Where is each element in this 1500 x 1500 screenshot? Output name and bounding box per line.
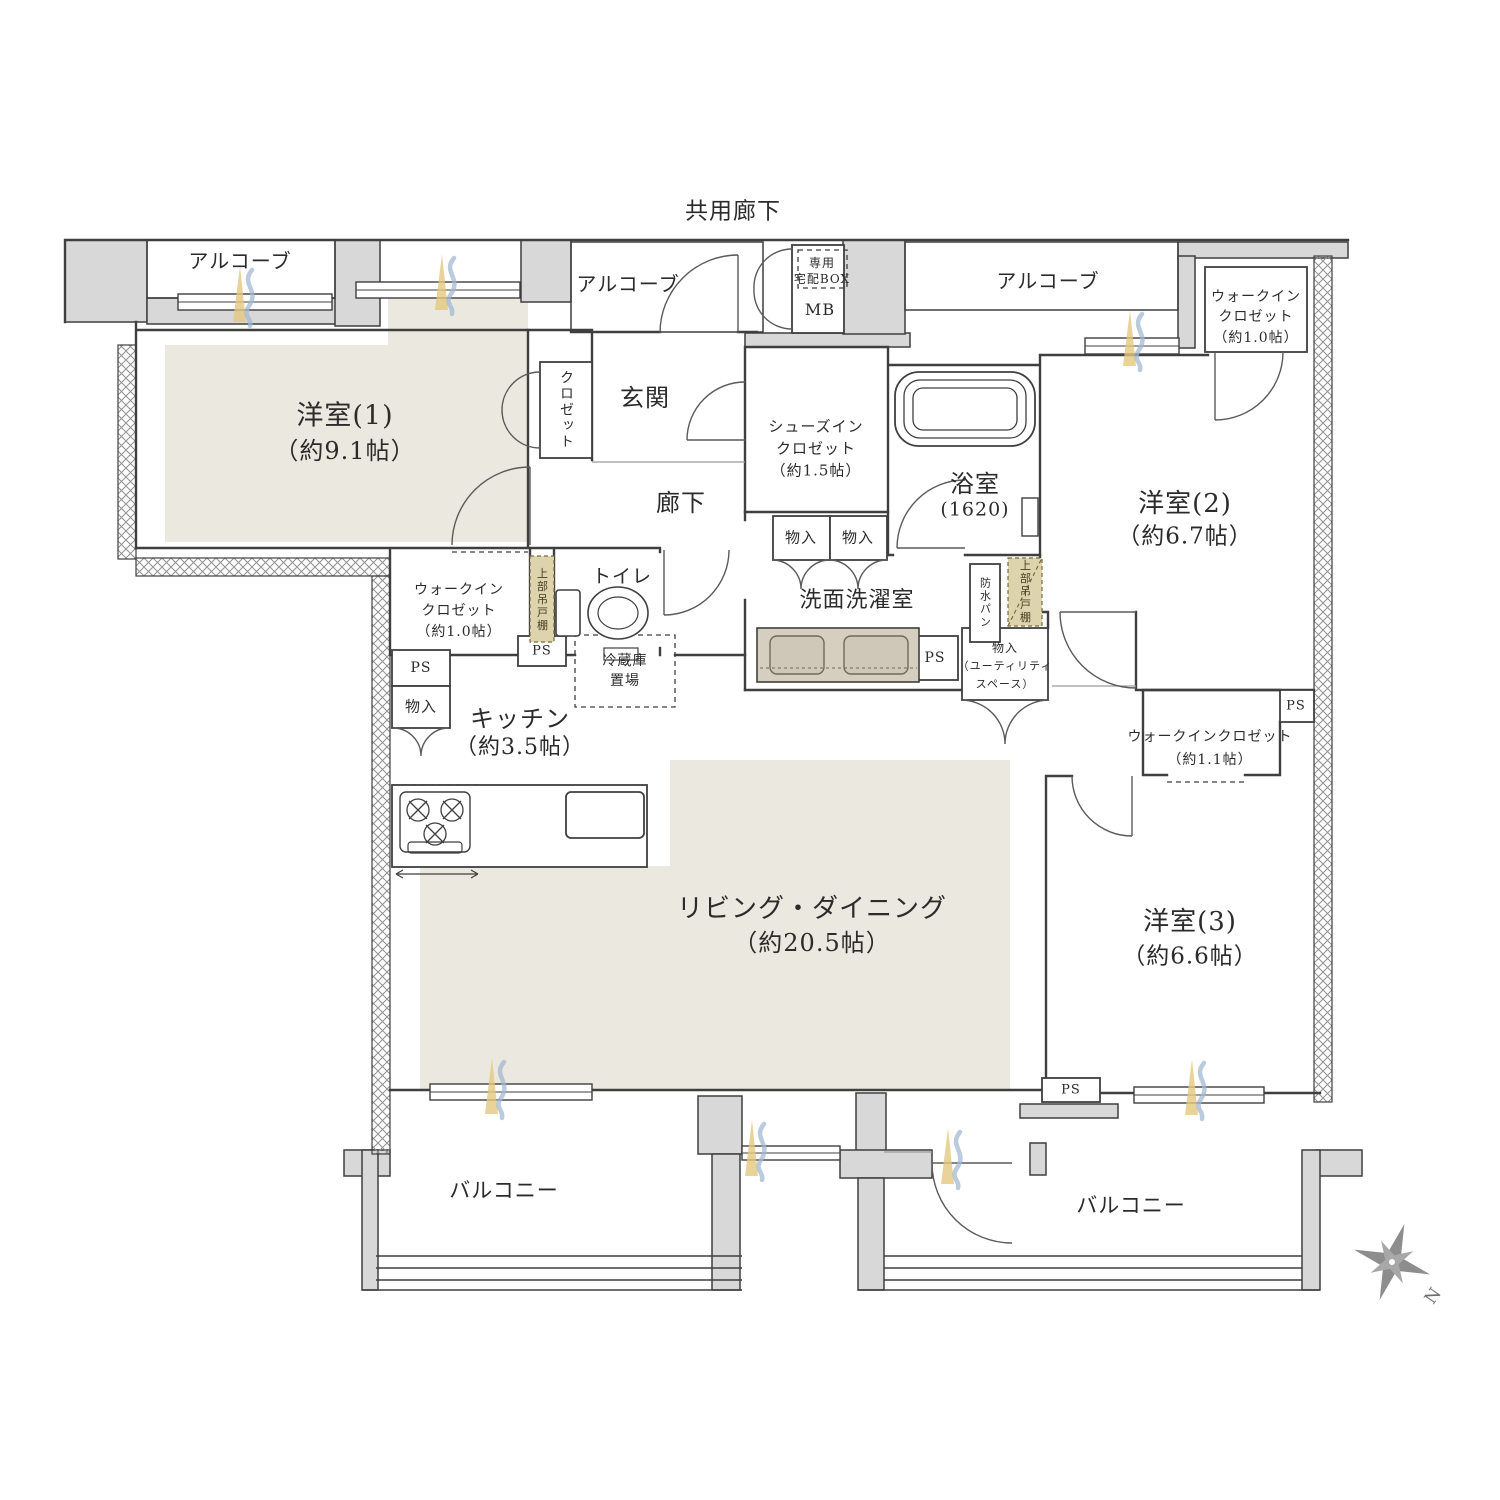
storage-utility-label-1: 物入	[992, 642, 1018, 654]
ps-label-2: PS	[532, 645, 552, 658]
waterproof-pan-label: 防水パン	[980, 577, 991, 629]
laundry-label: 洗面洗濯室	[799, 590, 914, 612]
balcony-right-label: バルコニー	[1076, 1196, 1186, 1217]
fridge-space-label-2: 置場	[610, 674, 640, 688]
bathroom-name: 浴室	[950, 472, 1000, 496]
toilet-label: トイレ	[592, 568, 652, 587]
wic-right-label-1: ウォークインクロゼット	[1128, 730, 1293, 744]
floor-plan: 共用廊下 アルコーブ アルコーブ アルコーブ 専用 宅配BOX MB ウォークイ…	[0, 0, 1500, 1500]
wic-top-right-label-1: ウォークイン	[1211, 290, 1301, 304]
room2-size: （約6.7帖）	[1117, 526, 1253, 549]
delivery-box-label-1: 専用	[809, 257, 835, 269]
upper-cabinet-right-label: 上部吊戸棚	[1020, 560, 1031, 625]
room1-size: （約9.1帖）	[274, 439, 415, 463]
alcove-right-label: アルコーブ	[996, 271, 1099, 291]
wic-top-right-label-2: クロゼット	[1219, 310, 1294, 324]
storage-utility-label-3: スペース）	[976, 679, 1035, 690]
balcony-left-label: バルコニー	[449, 1181, 559, 1202]
ps-label-5: PS	[1061, 1084, 1081, 1097]
vanity-counter	[757, 628, 919, 682]
storage-wash-1-label: 物入	[785, 531, 817, 546]
room1-name: 洋室(1)	[296, 403, 393, 430]
common-corridor-label: 共用廊下	[685, 201, 781, 224]
shoes-closet-label-2: クロゼット	[776, 442, 856, 457]
kitchen-counter	[392, 785, 647, 867]
storage-utility-label-2: （ユーティリティ	[958, 661, 1053, 672]
closet-label: クロゼット	[559, 370, 573, 450]
bathroom-size: (1620)	[940, 501, 1009, 520]
wic-left-label-1: ウォークイン	[414, 583, 504, 597]
mb-label: MB	[805, 302, 835, 318]
kitchen-size: （約3.5帖）	[455, 737, 585, 759]
kitchen-name: キッチン	[470, 707, 570, 731]
storage-kitchen-label: 物入	[405, 700, 437, 715]
room2-name: 洋室(2)	[1138, 491, 1232, 517]
alcove-center-label: アルコーブ	[576, 274, 679, 294]
storage-wash-2-label: 物入	[842, 531, 874, 546]
living-size: （約20.5帖）	[733, 931, 890, 955]
toilet-icon	[556, 587, 648, 660]
wic-left-label-3: （約1.0帖）	[416, 625, 501, 639]
genkan-label: 玄関	[620, 386, 670, 410]
shoes-closet-label-1: シューズイン	[768, 420, 863, 435]
balcony-railings	[362, 1256, 1320, 1290]
ps-label-4: PS	[1286, 700, 1306, 713]
delivery-box-label-2: 宅配BOX	[794, 273, 850, 285]
wic-top-right-label-3: （約1.0帖）	[1213, 331, 1298, 345]
wic-left-label-2: クロゼット	[422, 604, 497, 618]
ps-label-1: PS	[410, 661, 431, 675]
shoes-closet-label-3: （約1.5帖）	[771, 464, 862, 479]
alcove-left-label: アルコーブ	[188, 251, 291, 271]
upper-cabinet-left-label: 上部吊戸棚	[537, 568, 548, 633]
floor-plan-graphic	[0, 0, 1500, 1500]
fridge-space-label-1: 冷蔵庫	[603, 654, 648, 668]
room3-size: （約6.6帖）	[1122, 946, 1258, 969]
living-name: リビング・ダイニング	[677, 896, 947, 922]
corridor-label: 廊下	[656, 491, 706, 515]
wic-right-label-2: （約1.1帖）	[1167, 753, 1252, 767]
room3-name: 洋室(3)	[1143, 909, 1237, 935]
ps-label-3: PS	[924, 651, 945, 665]
